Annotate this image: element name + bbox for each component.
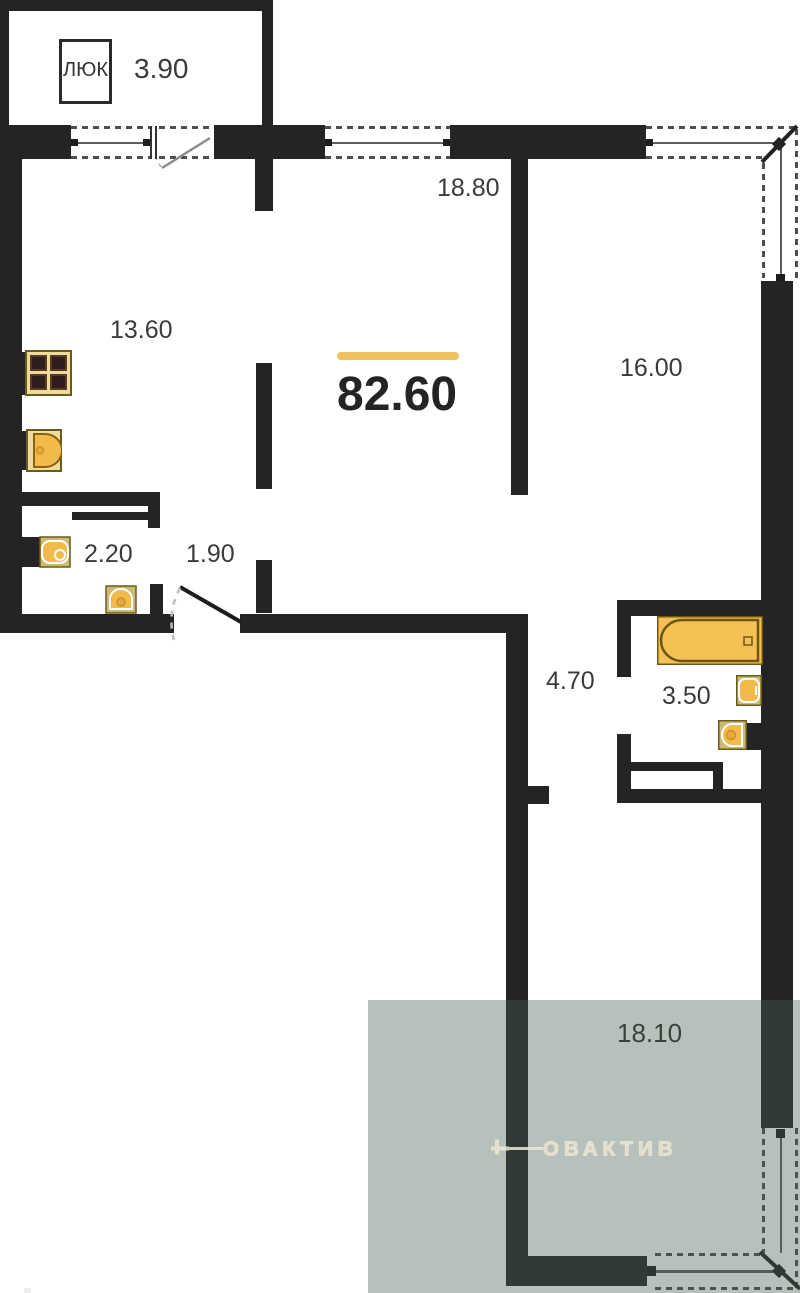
- svg-text:ОВАКТИВ: ОВАКТИВ: [543, 1138, 678, 1161]
